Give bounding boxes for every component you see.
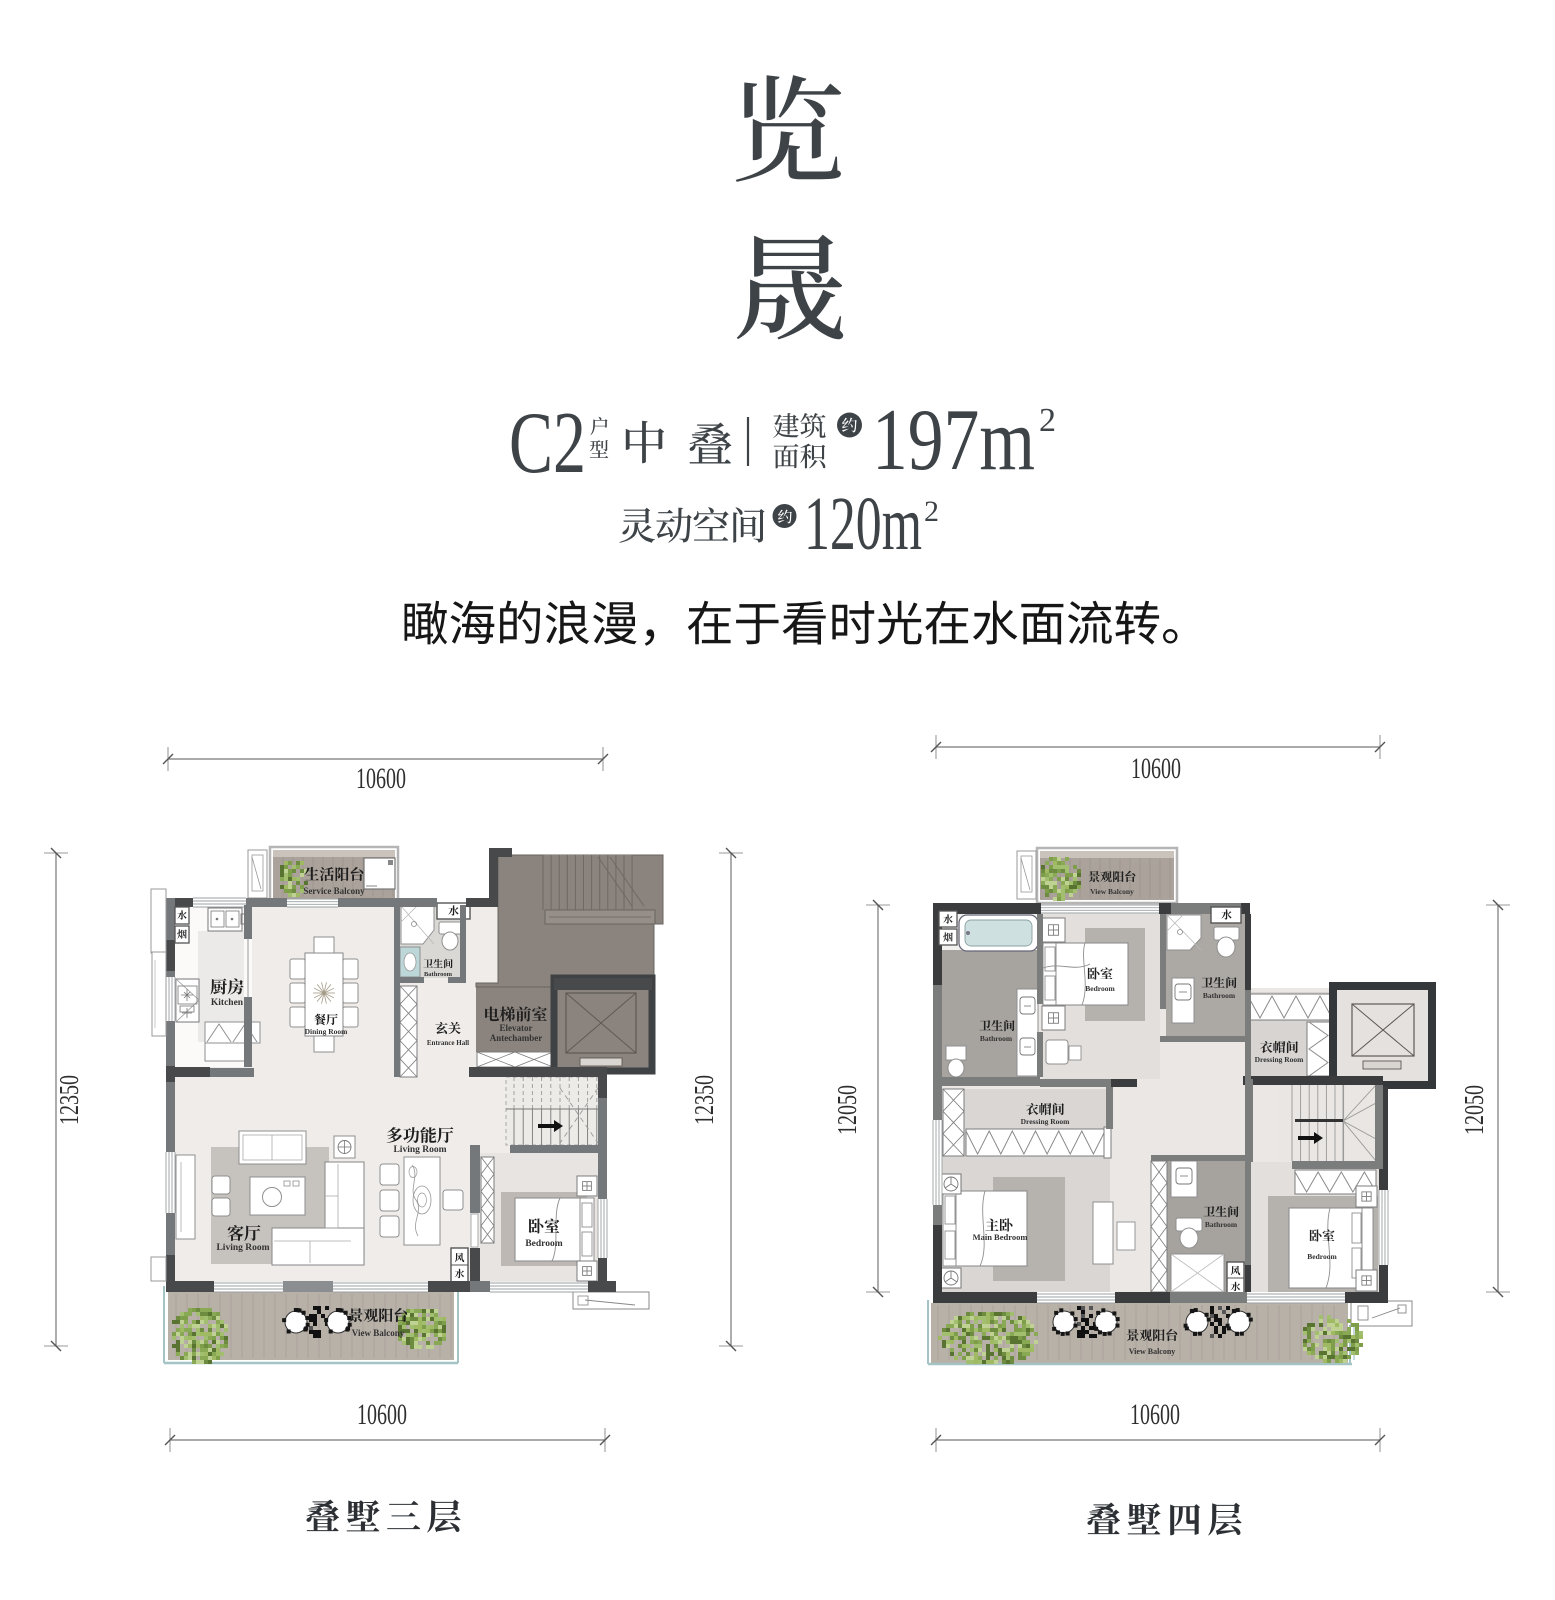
svg-text:View Balcony: View Balcony (1090, 887, 1134, 896)
svg-text:Bedroom: Bedroom (525, 1239, 562, 1249)
svg-text:12350: 12350 (689, 1075, 719, 1125)
svg-text:10600: 10600 (1131, 752, 1181, 785)
svg-text:12350: 12350 (54, 1075, 84, 1125)
svg-text:12050: 12050 (832, 1085, 862, 1135)
svg-text:Service Balcony: Service Balcony (303, 886, 365, 896)
svg-text:Living Room: Living Room (216, 1243, 269, 1253)
svg-text:Bathroom: Bathroom (1205, 1220, 1238, 1229)
svg-text:Entrance Hall: Entrance Hall (427, 1039, 469, 1047)
svg-text:10600: 10600 (356, 762, 406, 795)
svg-text:View Balcony: View Balcony (1129, 1347, 1176, 1356)
svg-text:Dressing Room: Dressing Room (1021, 1117, 1071, 1126)
svg-text:C2: C2 (509, 395, 586, 492)
svg-text:Bedroom: Bedroom (1085, 984, 1115, 993)
svg-text:197m: 197m (872, 392, 1035, 489)
svg-text:Kitchen: Kitchen (211, 998, 244, 1008)
svg-text:Bedroom: Bedroom (1307, 1252, 1337, 1261)
svg-text:10600: 10600 (357, 1398, 407, 1431)
svg-text:Main Bedroom: Main Bedroom (973, 1232, 1028, 1242)
svg-text:Antechamber: Antechamber (490, 1033, 543, 1043)
svg-text:Bathroom: Bathroom (980, 1034, 1013, 1043)
svg-text:Living Room: Living Room (393, 1145, 446, 1155)
svg-text:Bathroom: Bathroom (424, 971, 453, 978)
svg-text:Bathroom: Bathroom (1203, 991, 1236, 1000)
svg-text:120m: 120m (804, 482, 922, 566)
svg-text:Elevator: Elevator (500, 1023, 533, 1033)
svg-text:Dressing Room: Dressing Room (1255, 1055, 1305, 1064)
svg-text:View Balcony: View Balcony (352, 1328, 405, 1338)
svg-text:10600: 10600 (1130, 1398, 1180, 1431)
svg-text:2: 2 (1039, 402, 1056, 439)
svg-text:2: 2 (924, 495, 939, 528)
svg-text:Dining Room: Dining Room (305, 1027, 348, 1036)
svg-text:12050: 12050 (1459, 1085, 1489, 1135)
